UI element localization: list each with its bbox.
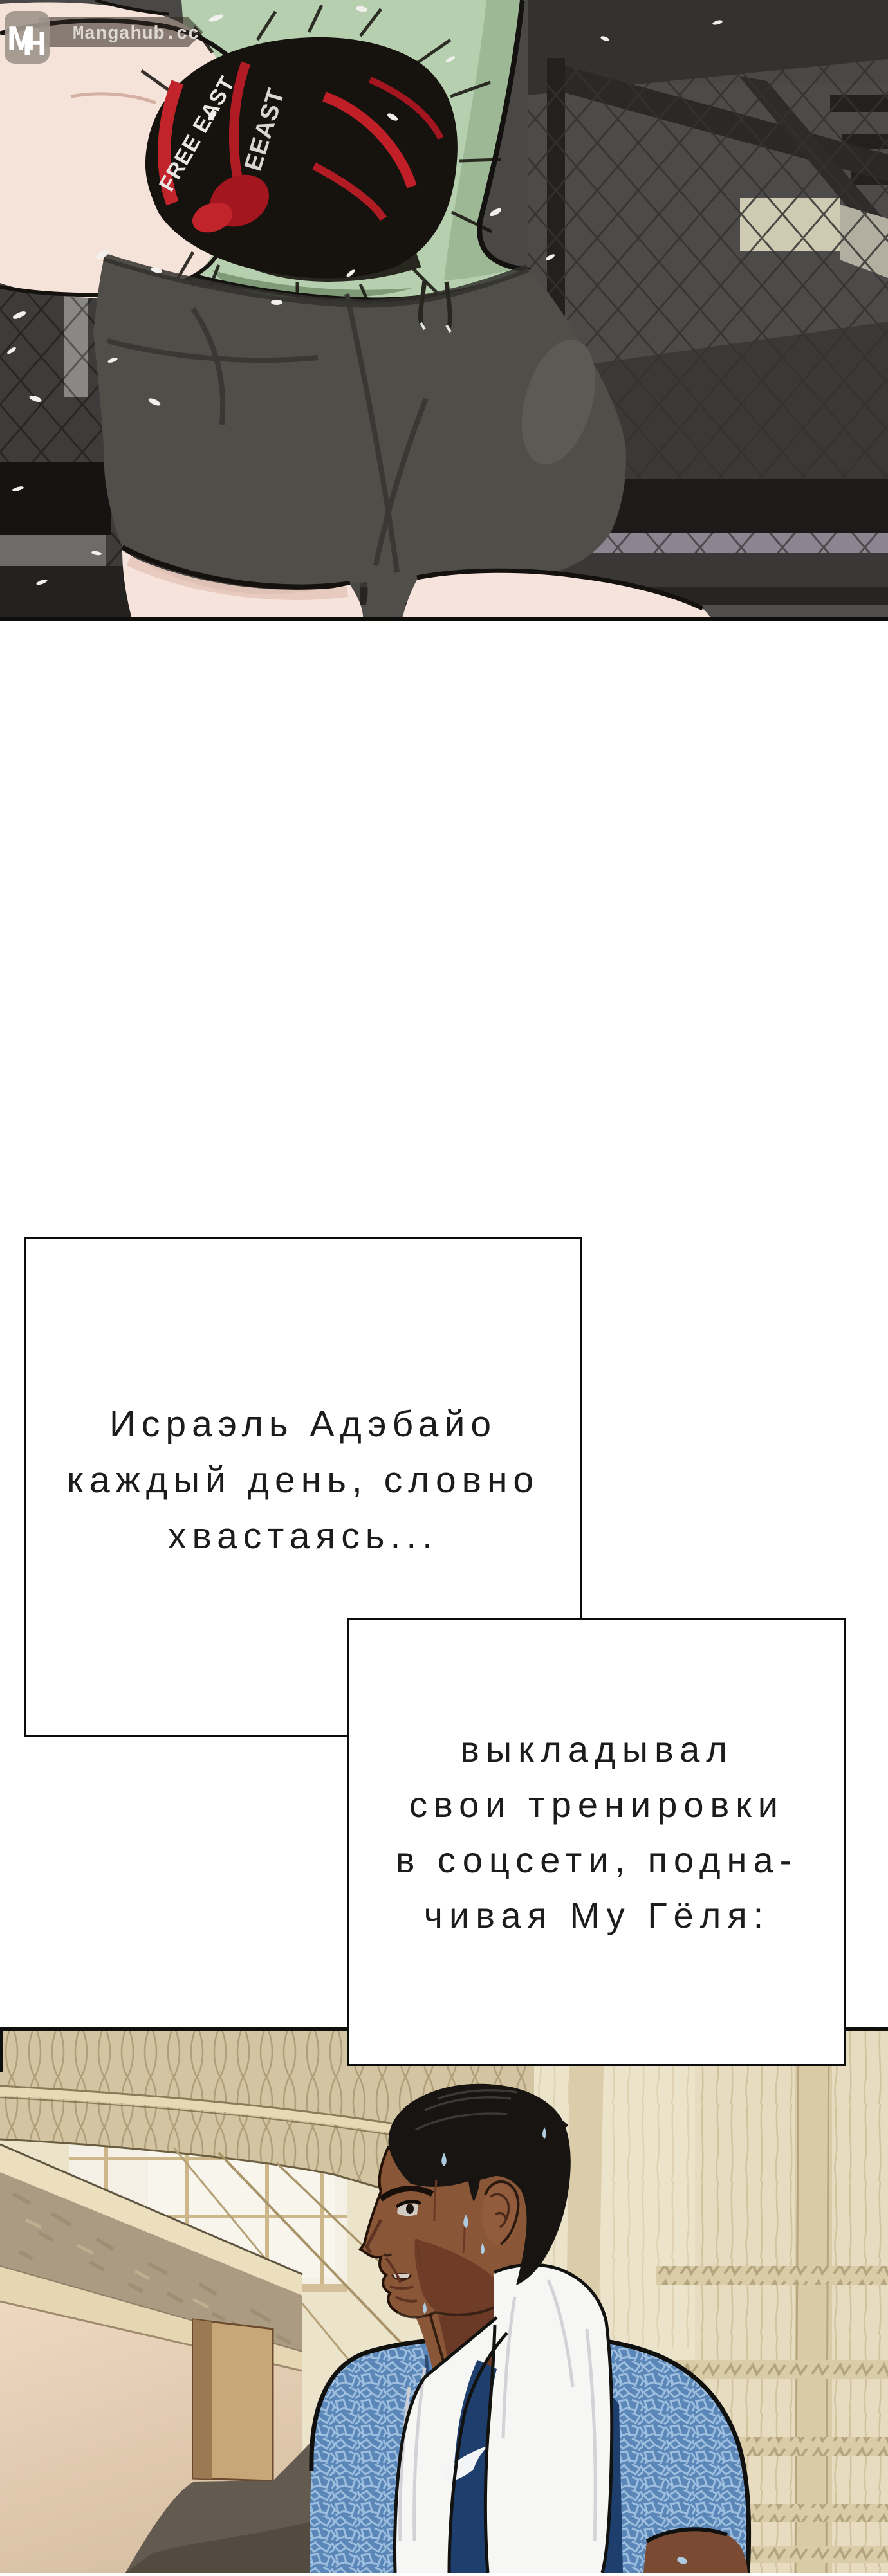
svg-text:H: H [23, 25, 47, 62]
